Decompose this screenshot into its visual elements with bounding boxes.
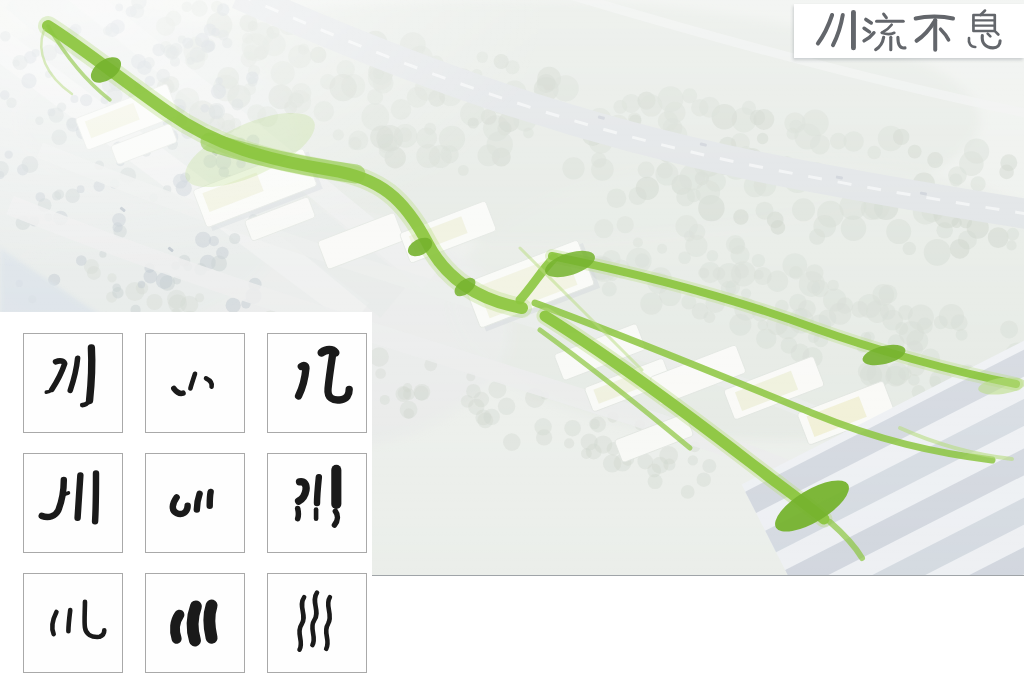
- title-calligraphy-icon: [800, 7, 1018, 55]
- chuan-glyph-variant-4-icon: [27, 457, 119, 549]
- title-box: 川流不息: [794, 4, 1024, 58]
- glyph-liu: [864, 14, 905, 50]
- glyph-chuan: [818, 12, 854, 48]
- chuan-glyph-variant-6-icon: [271, 457, 363, 549]
- calligraphy-tile-5: 川: [145, 453, 245, 553]
- calligraphy-tile-4: 川: [23, 453, 123, 553]
- calligraphy-tile-8: 川: [145, 573, 245, 673]
- chuan-glyph-variant-9-icon: [271, 577, 363, 669]
- concept-board: 川流不息 川 川: [0, 0, 1024, 680]
- calligraphy-grid-panel: 川 川 川 川: [0, 312, 372, 680]
- calligraphy-tile-9: 川: [267, 573, 367, 673]
- chuan-glyph-variant-2-icon: [149, 337, 241, 429]
- chuan-glyph-variant-8-icon: [149, 577, 241, 669]
- chuan-glyph-variant-1-icon: [27, 337, 119, 429]
- calligraphy-tile-1: 川: [23, 333, 123, 433]
- glyph-xi: [969, 11, 1000, 48]
- calligraphy-tile-7: 川: [23, 573, 123, 673]
- chuan-glyph-variant-3-icon: [271, 337, 363, 429]
- chuan-glyph-variant-7-icon: [27, 577, 119, 669]
- calligraphy-tile-3: 川: [267, 333, 367, 433]
- calligraphy-tile-2: 川: [145, 333, 245, 433]
- calligraphy-tile-6: 川: [267, 453, 367, 553]
- glyph-bu: [916, 17, 953, 50]
- chuan-glyph-variant-5-icon: [149, 457, 241, 549]
